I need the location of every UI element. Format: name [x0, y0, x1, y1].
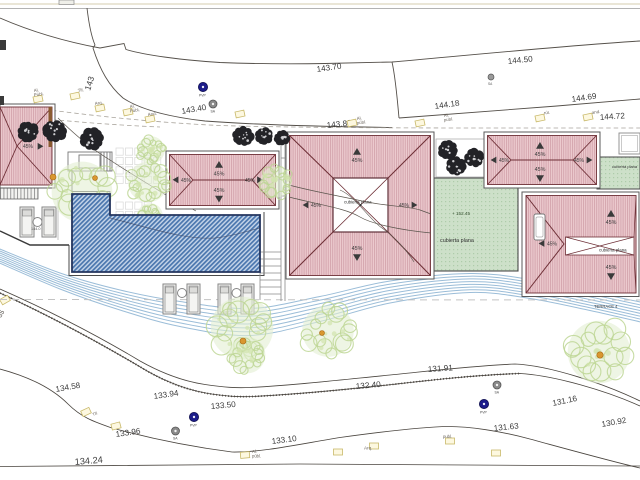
svg-text:45%: 45% — [547, 242, 558, 248]
svg-text:45%: 45% — [535, 167, 546, 173]
svg-text:144.72: 144.72 — [600, 111, 626, 122]
svg-text:45%: 45% — [606, 265, 617, 271]
svg-text:45%: 45% — [352, 158, 363, 164]
svg-text:45%: 45% — [399, 203, 410, 209]
svg-text:45%: 45% — [214, 172, 225, 178]
svg-text:PVP: PVP — [190, 424, 198, 428]
svg-text:publ.: publ. — [443, 434, 452, 439]
svg-text:144.0: 144.0 — [31, 227, 41, 231]
svg-text:Tlf.: Tlf. — [77, 87, 84, 93]
svg-text:PVP: PVP — [199, 94, 207, 98]
svg-text:rúr.: rúr. — [543, 110, 550, 116]
svg-text:cubierta plana: cubierta plana — [599, 248, 627, 253]
svg-text:45%: 45% — [23, 144, 34, 150]
svg-text:45%: 45% — [181, 178, 192, 184]
svg-text:45%: 45% — [535, 152, 546, 158]
svg-text:131.91: 131.91 — [428, 363, 454, 374]
svg-text:Arq.: Arq. — [364, 446, 372, 451]
svg-text:+ 152.45: + 152.45 — [452, 211, 470, 216]
svg-text:45%: 45% — [214, 188, 225, 194]
svg-text:PVP: PVP — [480, 411, 488, 415]
svg-text:cubierta plana: cubierta plana — [440, 238, 474, 244]
svg-text:TERRACE 4: TERRACE 4 — [594, 304, 618, 309]
svg-text:públ.: públ. — [252, 454, 261, 459]
svg-text:cubierta plana: cubierta plana — [612, 164, 638, 169]
svg-text:45%: 45% — [606, 220, 617, 226]
svg-text:45%: 45% — [499, 158, 510, 164]
svg-text:SA: SA — [495, 391, 500, 395]
svg-text:45%: 45% — [352, 246, 363, 252]
svg-text:SA: SA — [173, 437, 178, 441]
svg-text:45%: 45% — [574, 158, 585, 164]
svg-text:SA: SA — [211, 110, 216, 114]
svg-text:45%: 45% — [245, 178, 256, 184]
